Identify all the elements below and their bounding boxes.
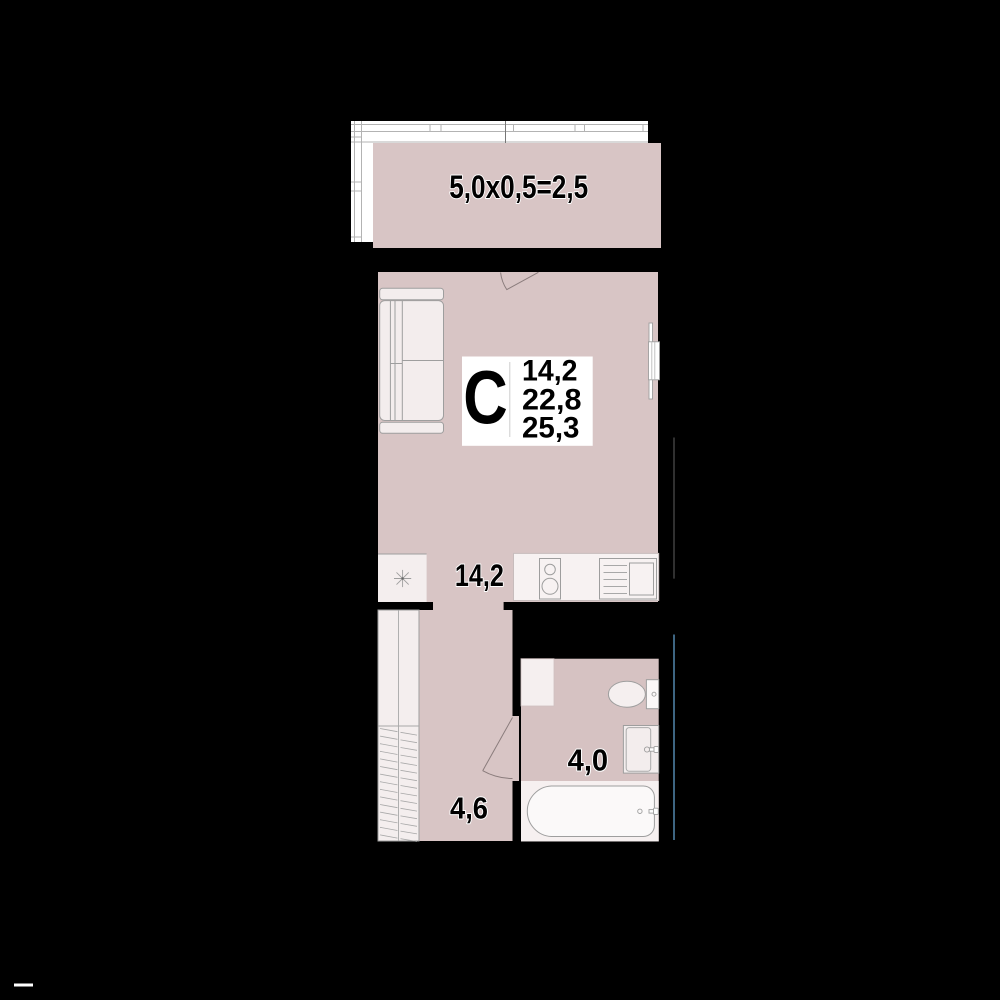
svg-text:4,6: 4,6 [450,792,488,826]
svg-text:C: C [463,355,508,439]
svg-text:5,0x0,5=2,5: 5,0x0,5=2,5 [449,169,588,205]
svg-text:25,3: 25,3 [522,412,580,445]
svg-text:4,0: 4,0 [568,743,609,778]
svg-text:14,2: 14,2 [455,557,504,593]
